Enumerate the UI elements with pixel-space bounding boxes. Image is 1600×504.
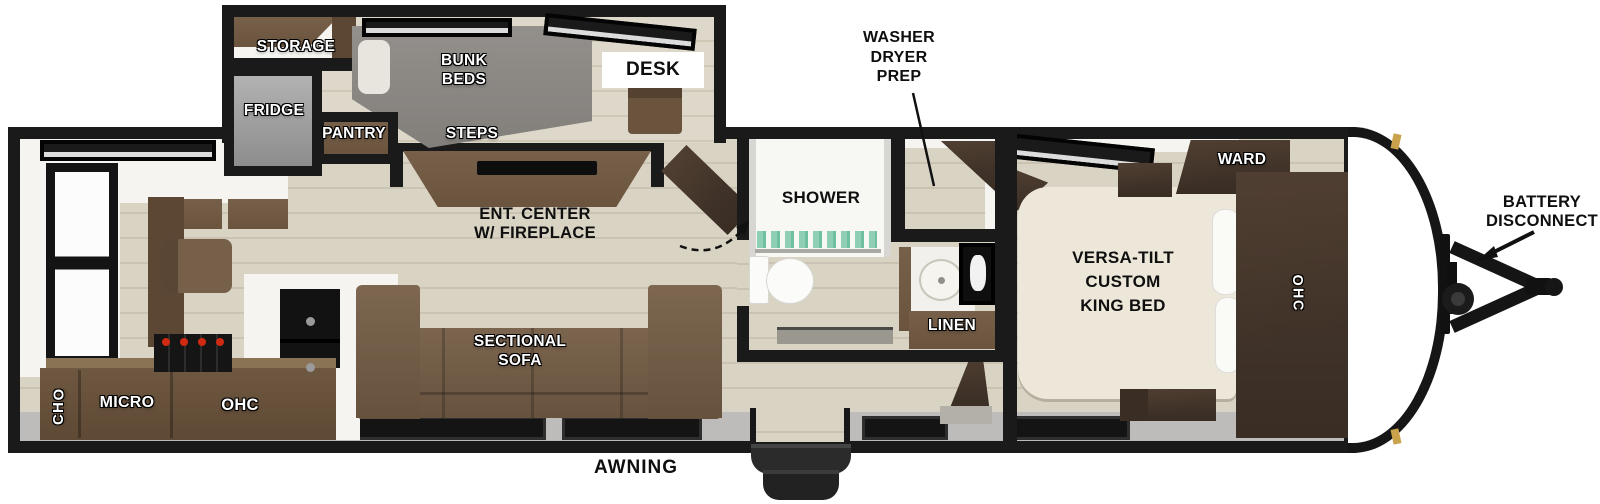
floorplan: STORAGE FRIDGE PANTRY BUNK BEDS DESK STE… [0,0,1600,504]
linen-label: LINEN [907,317,997,335]
angled-cabinet-hall-base [940,406,992,424]
bunk-pillow [358,40,390,94]
shower-towel-bar [757,231,877,248]
washer-dryer-prep-label: WASHER DRYER PREP [841,28,957,87]
bath-bench [777,327,893,344]
headboard-cabinet [1118,163,1172,197]
sectional-sofa-label: SECTIONAL SOFA [450,332,590,371]
ward-label: WARD [1198,151,1286,169]
steps-label: STEPS [428,125,516,143]
entry-steps-lower [763,470,839,500]
wd-closet-wall [891,229,995,242]
window-bedroom-bottom [1014,416,1130,440]
cabinet-knob-bottom [306,363,315,372]
burner-2 [180,338,188,346]
front-cap [1348,127,1448,453]
king-bed-label: VERSA-TILT CUSTOM KING BED [1047,246,1199,317]
window-sofa-left [352,416,546,440]
bed-foot-cabinet-end [1120,389,1148,421]
burner-4 [216,338,224,346]
cabinet-knob-top [306,317,315,326]
burner-1 [162,338,170,346]
storage-label: STORAGE [236,38,356,56]
window-dinette-top [40,140,216,161]
hitch-graphic [1440,234,1563,334]
tv [477,161,597,175]
battery-disconnect-label: BATTERY DISCONNECT [1484,193,1600,232]
ent-wall-stub-right [651,139,664,187]
bathroom-doorway [737,240,749,306]
shower-label: SHOWER [756,188,886,208]
window-hallway [862,416,948,440]
window-sofa-right [562,416,702,440]
sofa-arm-right [648,285,722,419]
wall-shelf-right [228,199,288,229]
window-bunk [362,18,512,37]
burner-3 [198,338,206,346]
entry-door [750,408,850,442]
fridge-label: FRIDGE [226,102,322,120]
shower-divider-wall [891,139,905,242]
sofa-arm-left [356,285,420,419]
cabinet-divider [280,339,340,343]
fridge-box [224,66,322,176]
shower-glass [755,249,881,253]
battery-arrow [1477,232,1534,261]
ent-center-label: ENT. CENTER W/ FIREPLACE [437,205,633,244]
micro-label: MICRO [84,394,170,412]
ohc-bedroom-label: OHC [1284,264,1310,322]
ohc-kitchen-left-label: OHC [48,380,72,434]
counter-seam-1 [78,370,81,438]
medicine-cabinet-mirror [970,255,986,291]
sink-drain [938,277,945,284]
ohc-kitchen-right-label: OHC [206,396,274,415]
counter-seam-2 [170,370,173,438]
pantry-label: PANTRY [306,125,402,143]
desk-label: DESK [602,52,704,88]
rear-window [46,163,118,365]
bunk-beds-label: BUNK BEDS [414,52,514,89]
ent-center-cabinet [403,151,651,207]
awning-label: AWNING [558,457,714,479]
toilet-bowl [766,258,814,304]
bedroom-wall [1003,127,1017,453]
desk-chair-rear-back [162,239,178,293]
